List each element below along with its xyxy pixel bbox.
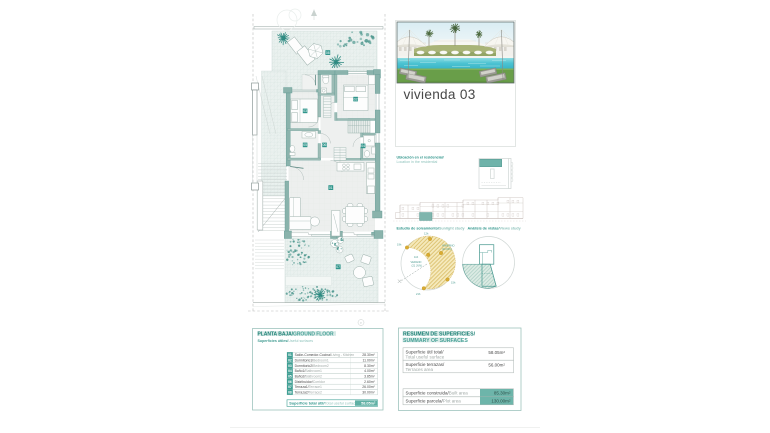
svg-text:15h: 15h <box>451 281 456 285</box>
svg-text:85.30m2: 85.30m2 <box>494 391 511 396</box>
svg-text:Superficie construida/Built ar: Superficie construida/Built area <box>406 391 469 396</box>
svg-text:19h: 19h <box>397 242 402 246</box>
svg-text:PLANTA BAJA/GROUND FLOOR: PLANTA BAJA/GROUND FLOOR <box>258 331 334 337</box>
svg-text:07: 07 <box>336 265 340 269</box>
svg-text:06: 06 <box>323 143 327 147</box>
svg-text:(21 JUN): (21 JUN) <box>412 263 423 267</box>
svg-text:03: 03 <box>303 109 307 113</box>
svg-text:05: 05 <box>288 375 292 379</box>
svg-text:Baño2/Bathroom2: Baño2/Bathroom2 <box>295 375 322 379</box>
svg-text:SUMMARY OF SURFACES: SUMMARY OF SURFACES <box>403 338 468 344</box>
svg-text:Superficie total útil/Total us: Superficie total útil/Total useful surfa… <box>289 402 357 406</box>
svg-text:58.05m2: 58.05m2 <box>488 350 505 355</box>
svg-text:RESUMEN DE SUPERFICIES/: RESUMEN DE SUPERFICIES/ <box>403 331 476 337</box>
svg-text:11h: 11h <box>414 255 419 259</box>
svg-text:02: 02 <box>288 359 292 363</box>
svg-text:Ubicación en el residencial/: Ubicación en el residencial/ <box>397 155 444 159</box>
svg-text:28.30m2: 28.30m2 <box>362 353 375 357</box>
svg-text:Superficie parcela/Plot area: Superficie parcela/Plot area <box>406 399 462 404</box>
svg-text:08: 08 <box>326 51 330 55</box>
svg-text:Análisis de vistas/Views study: Análisis de vistas/Views study <box>468 226 522 230</box>
svg-text:3.85m2: 3.85m2 <box>364 375 375 379</box>
svg-text:Dormitorio2/Bedroom2: Dormitorio2/Bedroom2 <box>295 364 329 368</box>
svg-text:01: 01 <box>288 353 292 357</box>
svg-text:05: 05 <box>303 143 307 147</box>
svg-text:Dormitorio1/Bedroom1: Dormitorio1/Bedroom1 <box>295 359 329 363</box>
svg-text:11.00m2: 11.00m2 <box>363 359 376 363</box>
svg-text:02: 02 <box>354 97 358 101</box>
svg-text:04: 04 <box>361 144 365 148</box>
svg-text:4.00m2: 4.00m2 <box>364 369 375 373</box>
svg-text:04: 04 <box>288 369 292 373</box>
svg-text:Baño1/Bathroom1: Baño1/Bathroom1 <box>295 369 322 373</box>
svg-text:Location in the residential: Location in the residential <box>397 160 438 164</box>
svg-text:Terraces area: Terraces area <box>406 367 434 372</box>
svg-text:(21 DIC): (21 DIC) <box>442 247 452 251</box>
svg-text:08: 08 <box>288 391 292 395</box>
svg-text:01: 01 <box>329 186 333 190</box>
svg-text:26.00m2: 26.00m2 <box>362 385 375 389</box>
svg-text:Distribuidor/Corridor: Distribuidor/Corridor <box>295 380 326 384</box>
svg-text:06: 06 <box>288 380 292 384</box>
svg-text:21h: 21h <box>416 292 421 296</box>
svg-text:07: 07 <box>288 385 292 389</box>
svg-text:Superficies útiles/Useful surf: Superficies útiles/Useful surfaces <box>258 339 314 343</box>
svg-text:Total useful surface: Total useful surface <box>406 354 445 359</box>
svg-text:vivienda 03: vivienda 03 <box>404 87 476 102</box>
svg-text:2.60m2: 2.60m2 <box>364 380 375 384</box>
svg-text:Estudio de soleamiento/Sunligh: Estudio de soleamiento/Sunlight study <box>397 226 466 230</box>
svg-text:58.05m2: 58.05m2 <box>361 402 376 406</box>
svg-text:130.00m2: 130.00m2 <box>491 399 511 404</box>
svg-text:30.00m2: 30.00m2 <box>362 391 375 395</box>
svg-text:Terraza2/Terrace2: Terraza2/Terrace2 <box>295 391 322 395</box>
svg-text:Terraza1/Terrace1: Terraza1/Terrace1 <box>295 385 322 389</box>
svg-text:12h: 12h <box>424 231 429 235</box>
svg-text:Salón-Comedor-Cocina/Living -: Salón-Comedor-Cocina/Living - Kitchen <box>295 353 355 357</box>
svg-text:8.30m2: 8.30m2 <box>364 364 375 368</box>
svg-text:03: 03 <box>288 364 292 368</box>
svg-text:56.00m2: 56.00m2 <box>488 362 505 367</box>
svg-text:e: e <box>360 321 362 325</box>
